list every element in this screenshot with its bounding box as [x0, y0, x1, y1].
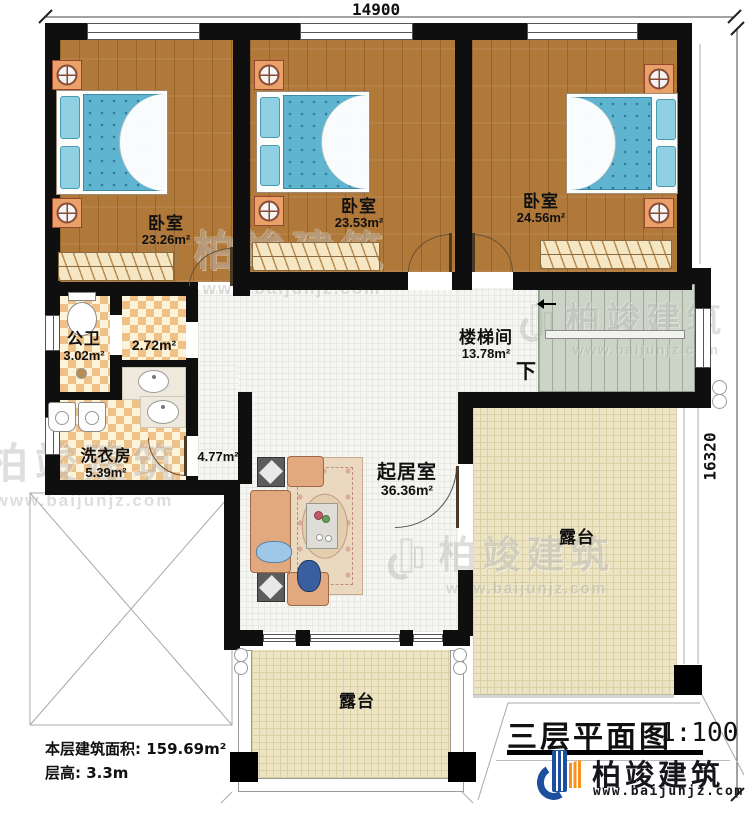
pillow	[60, 96, 80, 139]
room-label-laundry: 洗衣房 5.39m²	[80, 448, 131, 480]
wall-segment	[677, 23, 692, 270]
wall-segment	[513, 272, 692, 290]
armchair	[287, 456, 324, 487]
wall-segment	[296, 630, 310, 646]
flower-icon	[322, 515, 330, 523]
pillow	[260, 145, 280, 186]
wall-segment	[455, 40, 472, 272]
wall-segment	[45, 282, 190, 296]
wardrobe	[540, 240, 672, 269]
wall-segment	[695, 284, 711, 308]
wall-segment	[413, 23, 527, 40]
wall-segment	[458, 570, 473, 636]
floor-height-value: 3.3m	[86, 764, 128, 782]
person-sitting	[297, 560, 321, 592]
toilet-icon	[68, 292, 96, 301]
planter-icon	[234, 648, 248, 662]
sliding-door	[310, 634, 400, 642]
pillow	[60, 146, 80, 189]
floor-height-info: 层高: 3.3m	[45, 762, 128, 783]
wall-segment	[458, 408, 473, 464]
wall-segment	[45, 480, 238, 495]
terrace-railing-bottom	[238, 778, 464, 792]
floor-area-value: 159.69m²	[146, 740, 226, 758]
cup-icon	[316, 534, 323, 541]
side-table	[257, 457, 285, 487]
door-leaf	[456, 466, 459, 528]
wall-segment	[677, 268, 711, 284]
bed	[256, 91, 370, 193]
wall-segment	[250, 272, 408, 290]
wall-segment	[238, 392, 252, 484]
sink-icon	[147, 400, 179, 424]
room-label-corridor: 4.77m²	[197, 450, 238, 465]
wardrobe	[252, 242, 380, 271]
wall-segment	[237, 630, 263, 646]
column	[674, 665, 702, 695]
drawing-scale: 1:100	[660, 718, 738, 748]
cup-icon	[325, 535, 332, 542]
wall-segment	[443, 630, 470, 646]
pillow	[656, 99, 676, 140]
floor-plan: 14900 16320 柏竣建筑 www.baijunjz.com 柏竣建筑 w…	[0, 0, 750, 814]
sliding-door	[413, 634, 443, 642]
window	[45, 315, 60, 351]
door-leaf	[230, 247, 233, 286]
room-label-terrace-bottom: 露台	[339, 692, 375, 711]
sliding-door	[263, 634, 296, 642]
wall-segment	[200, 23, 300, 40]
planter-icon	[712, 394, 727, 409]
stair-down-label: 下	[516, 355, 536, 384]
dimension-right-label: 16320	[701, 432, 720, 480]
pillow	[260, 97, 280, 138]
window	[695, 308, 711, 368]
wall-segment	[110, 355, 122, 394]
column	[448, 752, 476, 782]
room-label-bedroom2: 卧室 23.53m²	[335, 197, 383, 231]
door-leaf	[472, 233, 475, 272]
wall-segment	[110, 296, 122, 315]
room-label-bedroom1: 卧室 23.26m²	[142, 214, 190, 248]
sink-icon	[138, 370, 169, 393]
wall-segment	[45, 392, 122, 400]
wall-segment	[186, 358, 198, 394]
stair-handrail	[545, 330, 685, 339]
wall-segment	[452, 272, 472, 290]
brand-logo-icon	[537, 748, 591, 802]
person-lying	[256, 541, 292, 563]
side-table	[257, 572, 285, 602]
door-leaf	[184, 436, 187, 476]
floor-drain-icon	[76, 368, 87, 379]
window	[300, 23, 413, 40]
nightstand-lamp-icon	[644, 198, 674, 228]
column	[230, 752, 258, 782]
room-label-stairwell: 楼梯间 13.78m²	[459, 328, 513, 362]
stair-direction-arrow-icon	[540, 303, 556, 305]
bed	[56, 90, 168, 195]
floor-area-info: 本层建筑面积: 159.69m²	[45, 738, 226, 759]
nightstand-lamp-icon	[254, 196, 284, 226]
washing-machine-icon	[78, 402, 106, 432]
washing-machine-icon	[48, 402, 76, 432]
planter-icon	[453, 648, 467, 662]
planter-icon	[712, 380, 727, 395]
window	[87, 23, 200, 40]
nightstand-lamp-icon	[254, 60, 284, 90]
wall-segment	[186, 282, 198, 322]
room-label-bedroom3: 卧室 24.56m²	[517, 192, 565, 226]
wardrobe	[58, 252, 174, 281]
terrace-right-floor	[473, 408, 677, 695]
room-label-living: 起居室 36.36m²	[377, 462, 437, 499]
room-label-closet: 2.72m²	[132, 338, 176, 354]
wall-segment	[224, 484, 240, 650]
brand-website: www.baijunjz.com	[593, 784, 744, 799]
wall-segment	[233, 40, 250, 296]
room-label-terrace-right: 露台	[559, 528, 595, 547]
nightstand-lamp-icon	[644, 64, 674, 94]
pillow	[656, 146, 676, 187]
planter-icon	[453, 661, 467, 675]
room-label-bathroom: 公卫 3.02m²	[63, 331, 104, 363]
wall-segment	[458, 392, 711, 408]
nightstand-lamp-icon	[52, 60, 82, 90]
wall-segment	[122, 360, 186, 367]
dimension-top-label: 14900	[352, 0, 400, 19]
door-leaf	[449, 233, 452, 272]
wall-segment	[186, 394, 198, 436]
nightstand-lamp-icon	[52, 198, 82, 228]
bed	[566, 93, 678, 194]
terrace-bottom-floor	[252, 650, 450, 778]
wall-segment	[400, 630, 413, 646]
floor-height-label: 层高:	[45, 764, 81, 782]
coffee-table	[306, 503, 338, 549]
floor-area-label: 本层建筑面积:	[45, 740, 141, 758]
window	[527, 23, 638, 40]
planter-icon	[234, 661, 248, 675]
